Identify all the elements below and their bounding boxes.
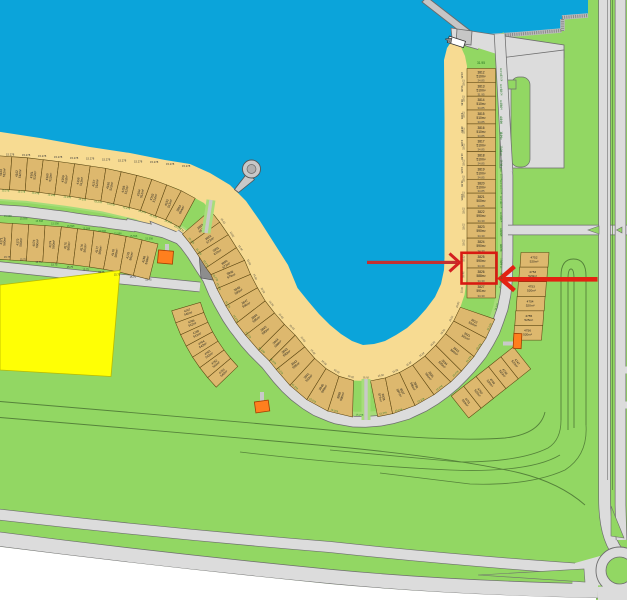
svg-text:15.02: 15.02 <box>463 207 466 214</box>
svg-text:34.85: 34.85 <box>478 175 485 179</box>
svg-text:520m²: 520m² <box>526 303 535 307</box>
svg-text:15.04: 15.04 <box>500 160 503 167</box>
svg-text:15.278: 15.278 <box>500 180 503 188</box>
svg-text:15.04: 15.04 <box>500 89 503 96</box>
svg-text:15.02: 15.02 <box>363 376 370 379</box>
svg-text:15.598: 15.598 <box>4 215 12 218</box>
svg-text:34.85: 34.85 <box>460 72 464 79</box>
svg-text:15.75: 15.75 <box>98 271 105 274</box>
svg-text:15.02: 15.02 <box>463 79 466 86</box>
svg-text:15.04: 15.04 <box>500 272 503 279</box>
svg-text:590m²: 590m² <box>476 259 485 263</box>
svg-text:34.85: 34.85 <box>478 106 485 110</box>
svg-text:15.278: 15.278 <box>118 159 127 163</box>
svg-text:560m²: 560m² <box>2 237 7 246</box>
svg-text:15.278: 15.278 <box>356 414 364 417</box>
svg-text:15.278: 15.278 <box>70 156 79 160</box>
svg-text:15.04: 15.04 <box>500 75 503 82</box>
svg-text:520m²: 520m² <box>523 333 532 337</box>
svg-text:512m²: 512m² <box>18 169 23 178</box>
svg-text:15.04: 15.04 <box>500 202 503 209</box>
svg-text:590m²: 590m² <box>476 214 485 218</box>
svg-text:15.278: 15.278 <box>6 152 15 156</box>
svg-text:520m²: 520m² <box>530 260 539 264</box>
svg-text:15.02: 15.02 <box>463 95 466 102</box>
svg-text:15.278: 15.278 <box>150 160 159 164</box>
svg-text:15.278: 15.278 <box>17 190 25 194</box>
svg-text:15.02: 15.02 <box>463 143 466 150</box>
svg-text:15.598: 15.598 <box>130 235 138 238</box>
svg-text:15.04: 15.04 <box>500 244 503 251</box>
svg-text:15.278: 15.278 <box>22 153 31 157</box>
svg-text:15.02: 15.02 <box>463 111 466 118</box>
svg-text:15.02: 15.02 <box>463 223 466 230</box>
svg-text:588m²: 588m² <box>476 274 485 278</box>
svg-text:15.04: 15.04 <box>500 117 503 124</box>
svg-text:15.75: 15.75 <box>35 261 42 264</box>
svg-text:525m²: 525m² <box>524 318 533 322</box>
svg-text:560m²: 560m² <box>51 240 56 249</box>
svg-text:500m²: 500m² <box>476 199 485 203</box>
svg-text:591m²: 591m² <box>476 289 485 293</box>
svg-text:31.95: 31.95 <box>478 92 485 96</box>
svg-text:34.85: 34.85 <box>478 134 485 138</box>
svg-text:15.278: 15.278 <box>2 189 10 193</box>
svg-text:34.85: 34.85 <box>478 189 485 193</box>
svg-text:15.598: 15.598 <box>67 225 75 228</box>
svg-text:560m²: 560m² <box>35 239 40 248</box>
svg-text:590m²: 590m² <box>476 229 485 233</box>
svg-text:31.95: 31.95 <box>477 61 485 65</box>
svg-text:15.04: 15.04 <box>500 174 503 181</box>
svg-text:520m²: 520m² <box>527 289 536 293</box>
svg-text:34.85: 34.85 <box>478 148 485 152</box>
svg-text:15.278: 15.278 <box>182 164 191 168</box>
svg-text:15.278: 15.278 <box>102 158 111 162</box>
svg-text:15.598: 15.598 <box>35 220 43 223</box>
svg-text:15.04: 15.04 <box>500 146 503 153</box>
svg-text:15.02: 15.02 <box>463 159 466 166</box>
svg-text:15.278: 15.278 <box>134 159 143 163</box>
svg-text:34.30: 34.30 <box>478 234 485 238</box>
svg-text:15.598: 15.598 <box>145 238 153 241</box>
svg-text:15.598: 15.598 <box>98 230 106 233</box>
svg-text:34.85: 34.85 <box>460 167 464 174</box>
svg-text:34.85: 34.85 <box>478 120 485 124</box>
svg-text:15.02: 15.02 <box>463 239 466 246</box>
svg-text:560m²: 560m² <box>19 238 24 247</box>
svg-text:15.598: 15.598 <box>83 228 91 231</box>
svg-text:590m²: 590m² <box>476 244 485 248</box>
svg-text:34.85: 34.85 <box>478 78 485 82</box>
svg-text:34.30: 34.30 <box>478 219 485 223</box>
svg-text:15.75: 15.75 <box>20 259 27 262</box>
svg-text:15.02: 15.02 <box>463 127 466 134</box>
svg-text:34.30: 34.30 <box>478 294 485 298</box>
svg-text:15.598: 15.598 <box>51 223 59 226</box>
svg-text:15.278: 15.278 <box>86 157 95 161</box>
svg-text:15.278: 15.278 <box>166 162 175 166</box>
svg-text:34.30: 34.30 <box>478 264 485 268</box>
svg-text:15.598: 15.598 <box>114 233 122 236</box>
svg-text:15.75: 15.75 <box>67 266 74 269</box>
svg-text:15.02: 15.02 <box>462 255 465 262</box>
svg-text:15.04: 15.04 <box>500 216 503 223</box>
svg-text:34.85: 34.85 <box>460 153 464 160</box>
svg-text:15.02: 15.02 <box>462 271 465 278</box>
svg-text:512m²: 512m² <box>2 168 7 177</box>
svg-text:15.04: 15.04 <box>500 131 503 138</box>
svg-text:15.75: 15.75 <box>130 276 137 279</box>
svg-text:15.278: 15.278 <box>54 155 63 159</box>
svg-text:15.75: 15.75 <box>51 264 58 267</box>
svg-text:15.04: 15.04 <box>500 103 503 110</box>
svg-text:15.75: 15.75 <box>145 279 152 282</box>
svg-text:15.75: 15.75 <box>114 274 121 277</box>
svg-text:15.02: 15.02 <box>463 175 466 182</box>
svg-text:15.04: 15.04 <box>500 230 503 237</box>
svg-text:34.85: 34.85 <box>478 162 485 166</box>
svg-text:15.75: 15.75 <box>4 256 11 259</box>
svg-text:15.02: 15.02 <box>463 191 466 198</box>
svg-text:15.04: 15.04 <box>500 258 503 265</box>
svg-text:15.278: 15.278 <box>38 154 47 158</box>
svg-text:15.04: 15.04 <box>500 188 503 195</box>
svg-text:34.85: 34.85 <box>478 204 485 208</box>
svg-text:15.75: 15.75 <box>83 269 90 272</box>
svg-text:15.598: 15.598 <box>20 218 28 221</box>
